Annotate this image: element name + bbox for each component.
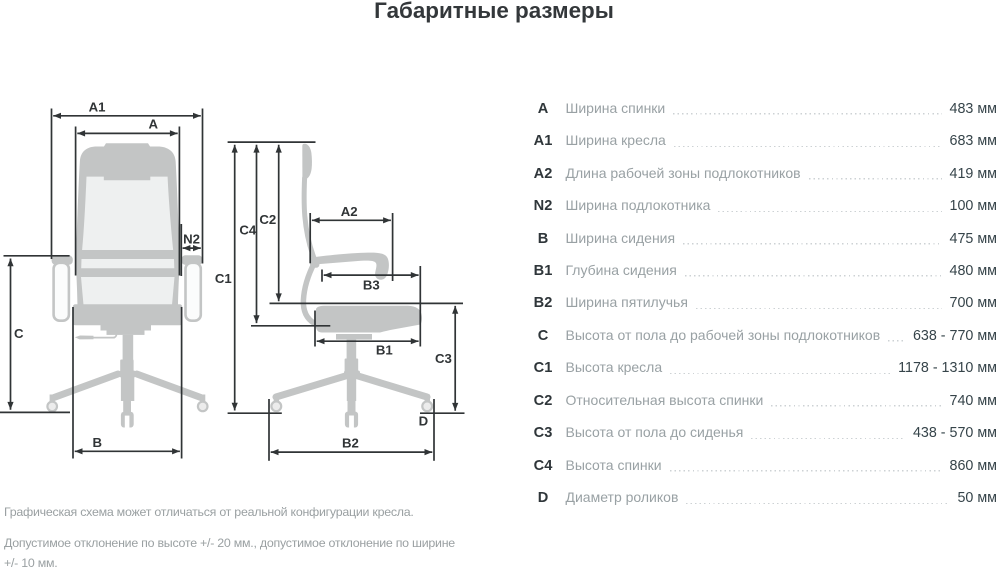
svg-text:A: A [149,117,159,132]
svg-text:A2: A2 [341,204,358,219]
svg-text:D: D [419,413,429,428]
svg-text:N2: N2 [183,231,200,246]
svg-text:B2: B2 [342,436,359,451]
svg-text:C1: C1 [215,271,232,286]
svg-text:B1: B1 [376,343,393,358]
svg-text:B: B [93,435,103,450]
svg-text:C: C [14,326,24,341]
svg-text:C4: C4 [239,222,257,237]
svg-text:C2: C2 [259,212,276,227]
svg-text:B3: B3 [363,277,380,292]
svg-text:C3: C3 [435,351,452,366]
svg-text:A1: A1 [89,99,106,114]
